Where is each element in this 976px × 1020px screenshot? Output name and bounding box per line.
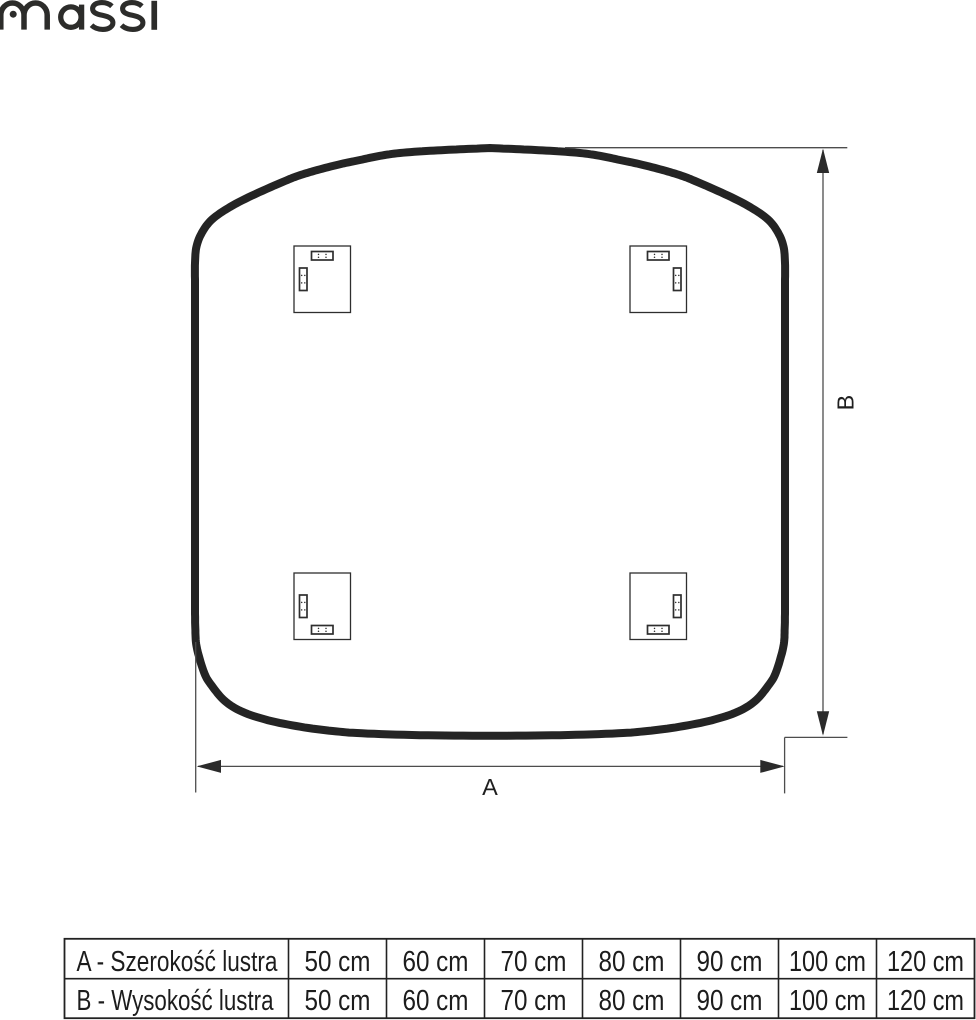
svg-text:50 cm: 50 cm [305, 985, 371, 1017]
svg-text:70 cm: 70 cm [501, 985, 567, 1017]
svg-text:90 cm: 90 cm [697, 946, 763, 978]
svg-text:60 cm: 60 cm [403, 985, 469, 1017]
svg-text:60 cm: 60 cm [403, 946, 469, 978]
svg-text:80 cm: 80 cm [599, 946, 665, 978]
svg-text:B - Wysokość lustra: B - Wysokość lustra [77, 985, 274, 1017]
svg-text:A - Szerokość lustra: A - Szerokość lustra [77, 946, 278, 978]
svg-text:120 cm: 120 cm [887, 946, 964, 978]
svg-text:100 cm: 100 cm [789, 985, 866, 1017]
svg-text:A: A [482, 774, 498, 800]
svg-text:70 cm: 70 cm [501, 946, 567, 978]
svg-text:B: B [833, 395, 859, 411]
svg-text:80 cm: 80 cm [599, 985, 665, 1017]
svg-text:120 cm: 120 cm [887, 985, 964, 1017]
svg-text:50 cm: 50 cm [305, 946, 371, 978]
svg-text:100 cm: 100 cm [789, 946, 866, 978]
svg-text:90 cm: 90 cm [697, 985, 763, 1017]
